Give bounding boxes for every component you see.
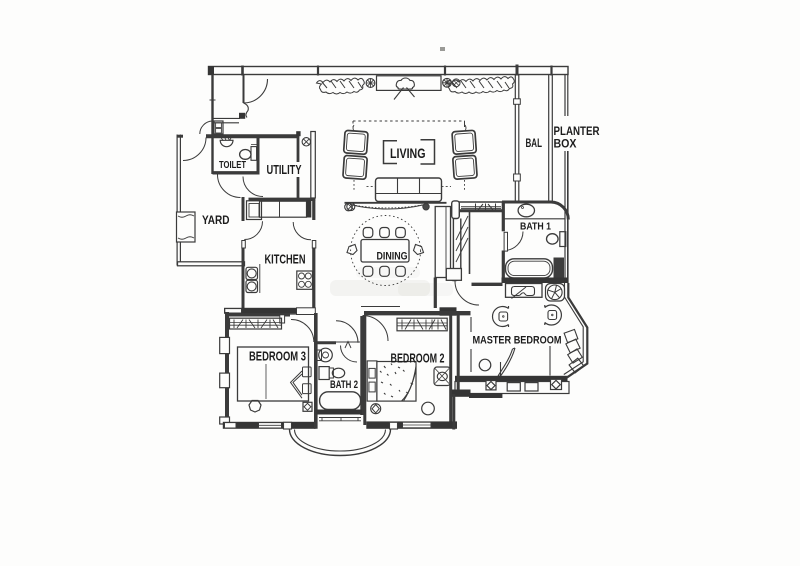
svg-text:MASTER BEDROOM: MASTER BEDROOM [473,335,562,347]
svg-text:LIVING: LIVING [390,145,426,161]
svg-text:UTILITY: UTILITY [267,163,302,177]
svg-text:BAL: BAL [526,136,543,150]
svg-text:BATH 2: BATH 2 [330,379,358,391]
svg-text:BATH 1: BATH 1 [520,221,551,233]
svg-text:TOILET: TOILET [219,159,246,171]
svg-text:YARD: YARD [202,213,230,227]
svg-text:KITCHEN: KITCHEN [265,253,306,267]
svg-text:BEDROOM 3: BEDROOM 3 [249,350,306,364]
svg-text:DINING: DINING [377,251,408,263]
svg-text:BOX: BOX [554,137,577,151]
svg-text:BEDROOM 2: BEDROOM 2 [391,352,445,366]
